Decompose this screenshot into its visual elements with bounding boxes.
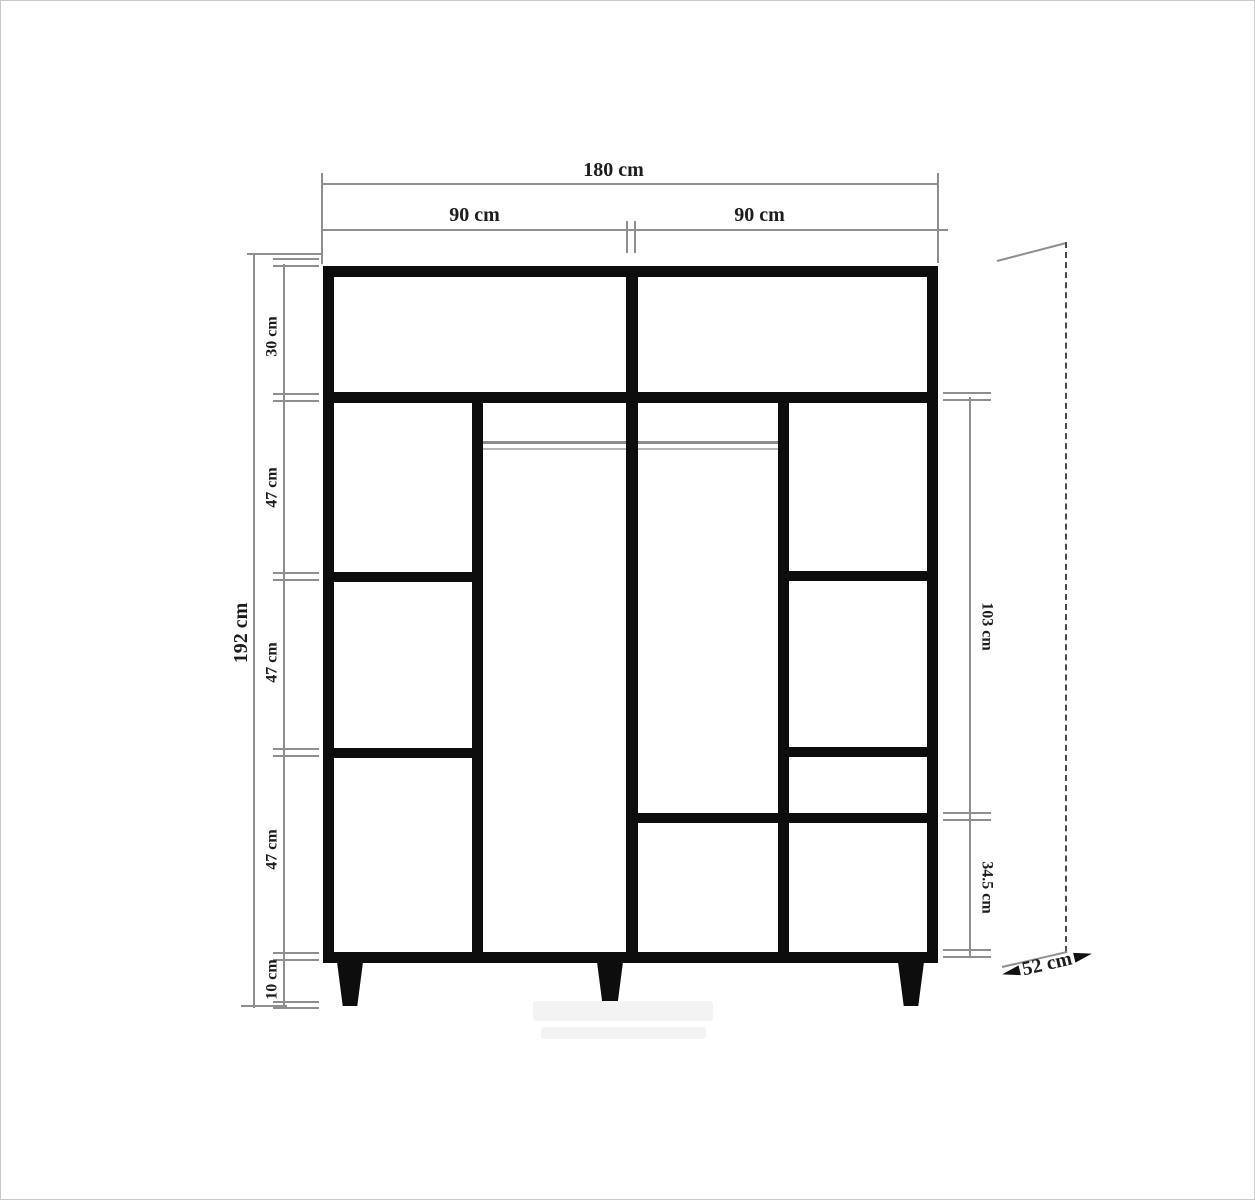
leg-left <box>337 962 363 1006</box>
dim-label-door-left: 90 cm <box>407 204 542 226</box>
dim-label-door-right: 90 cm <box>692 204 827 226</box>
dim-label-total-height: 192 cm <box>230 578 252 688</box>
left-tick <box>273 755 319 757</box>
right-column-divider <box>778 403 789 952</box>
dim-line-total-width <box>323 183 938 185</box>
left-column-divider <box>472 403 483 952</box>
left-shelf-2 <box>334 748 472 758</box>
dim-label-total-width: 180 cm <box>546 159 681 181</box>
dim-label-depth: 52 cm <box>1020 948 1074 981</box>
clothes-rail-right <box>638 441 778 450</box>
center-divider <box>626 277 638 952</box>
dim-label-bottom-right-section: 34.5 cm <box>979 843 996 933</box>
left-tick <box>273 400 319 402</box>
dim-line-total-height <box>253 253 255 1008</box>
dimension-arrow-right-icon <box>1073 949 1093 963</box>
dim-label-left-section-2: 47 cm <box>264 623 281 703</box>
dim-label-plinth: 10 cm <box>264 940 281 1020</box>
depth-projection-line-top <box>997 242 1066 262</box>
left-tick <box>273 572 319 574</box>
right-tick <box>943 399 991 401</box>
leg-center <box>597 962 623 1006</box>
right-tick <box>943 819 991 821</box>
left-tick <box>273 265 319 267</box>
right-shelf-1 <box>789 571 927 581</box>
left-shelf-1 <box>334 572 472 582</box>
extension-line-top-left <box>321 173 323 264</box>
right-tick <box>943 949 991 951</box>
left-tick <box>273 748 319 750</box>
left-tick <box>273 393 319 395</box>
center-tick-2 <box>634 221 636 253</box>
extension-height-top <box>247 253 323 255</box>
extension-line-top-right <box>937 173 939 263</box>
right-shelf-2 <box>789 747 927 757</box>
right-tick <box>943 956 991 958</box>
dim-label-top-section: 30 cm <box>264 297 281 377</box>
leg-right <box>898 962 924 1006</box>
dimension-arrow-left-icon <box>1001 965 1021 979</box>
left-tick <box>273 579 319 581</box>
depth-dimension: 52 cm <box>992 939 1101 988</box>
dim-line-right-sections <box>969 397 971 957</box>
watermark-remnant <box>533 1001 713 1021</box>
dim-label-left-section-1: 47 cm <box>264 448 281 528</box>
dim-label-left-section-3: 47 cm <box>264 810 281 890</box>
dim-line-left-sections <box>283 264 285 1007</box>
clothes-rail-left <box>483 441 626 450</box>
depth-dashed-line <box>1065 242 1067 952</box>
watermark-remnant <box>541 1027 706 1039</box>
center-tick-1 <box>626 221 628 253</box>
left-tick <box>273 258 319 260</box>
right-tick <box>943 812 991 814</box>
lower-shared-shelf <box>638 813 927 823</box>
dim-label-hanging-section: 103 cm <box>979 582 996 672</box>
wardrobe-technical-drawing: 180 cm 90 cm 90 cm 192 cm 30 cm 47 cm 47… <box>0 0 1255 1200</box>
right-tick <box>943 392 991 394</box>
